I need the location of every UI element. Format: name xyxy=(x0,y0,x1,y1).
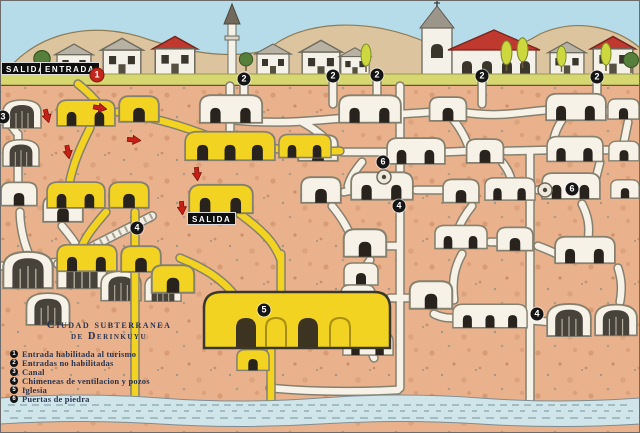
label-salida-mid: SALIDA xyxy=(187,212,236,225)
legend-items: 1Entrada habilitada al turismo2Entradas … xyxy=(10,349,238,403)
legend-item-text: Puertas de piedra xyxy=(22,394,90,404)
marker-2: 2 xyxy=(371,69,384,82)
legend-item-number: 3 xyxy=(10,368,18,376)
legend-title-line2: de Derinkuyu xyxy=(10,331,208,342)
marker-6: 6 xyxy=(377,156,390,169)
marker-6: 6 xyxy=(566,183,579,196)
legend-title-line1: Ciudad subterranea xyxy=(10,319,208,331)
marker-4: 4 xyxy=(531,308,544,321)
legend-item-6: 6Puertas de piedra xyxy=(10,394,238,403)
legend-item-number: 6 xyxy=(10,395,18,403)
derinkuyu-underground-city-cross-section: SALIDA ENTRADA SALIDA 1222223444566 Ciud… xyxy=(0,0,640,433)
legend-item-number: 1 xyxy=(10,350,18,358)
marker-2: 2 xyxy=(476,70,489,83)
marker-5: 5 xyxy=(258,304,271,317)
legend: Ciudad subterranea de Derinkuyu 1Entrada… xyxy=(10,319,238,403)
legend-item-number: 4 xyxy=(10,377,18,385)
marker-1: 1 xyxy=(91,69,104,82)
marker-2: 2 xyxy=(327,70,340,83)
marker-4: 4 xyxy=(393,200,406,213)
legend-item-number: 2 xyxy=(10,359,18,367)
marker-2: 2 xyxy=(238,73,251,86)
legend-item-number: 5 xyxy=(10,386,18,394)
marker-2: 2 xyxy=(591,71,604,84)
marker-4: 4 xyxy=(131,222,144,235)
